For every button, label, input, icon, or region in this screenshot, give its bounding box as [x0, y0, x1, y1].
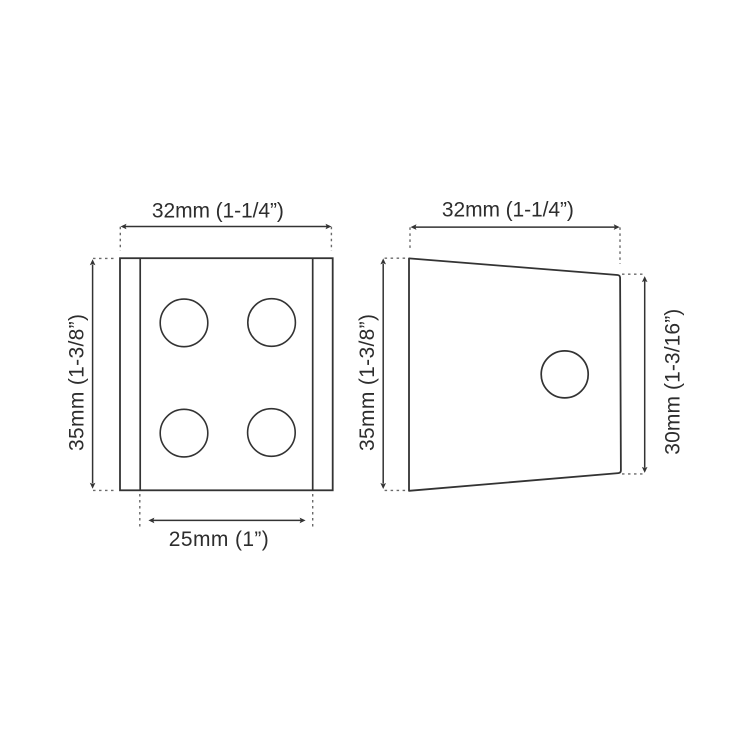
- svg-text:32mm (1-1/4”): 32mm (1-1/4”): [442, 199, 574, 222]
- svg-text:35mm (1-3/8”): 35mm (1-3/8”): [66, 314, 89, 451]
- svg-text:25mm (1”): 25mm (1”): [169, 528, 269, 551]
- svg-text:35mm (1-3/8”): 35mm (1-3/8”): [356, 314, 379, 451]
- svg-text:30mm (1-3/16”): 30mm (1-3/16”): [662, 309, 685, 455]
- svg-text:32mm (1-1/4”): 32mm (1-1/4”): [152, 200, 284, 223]
